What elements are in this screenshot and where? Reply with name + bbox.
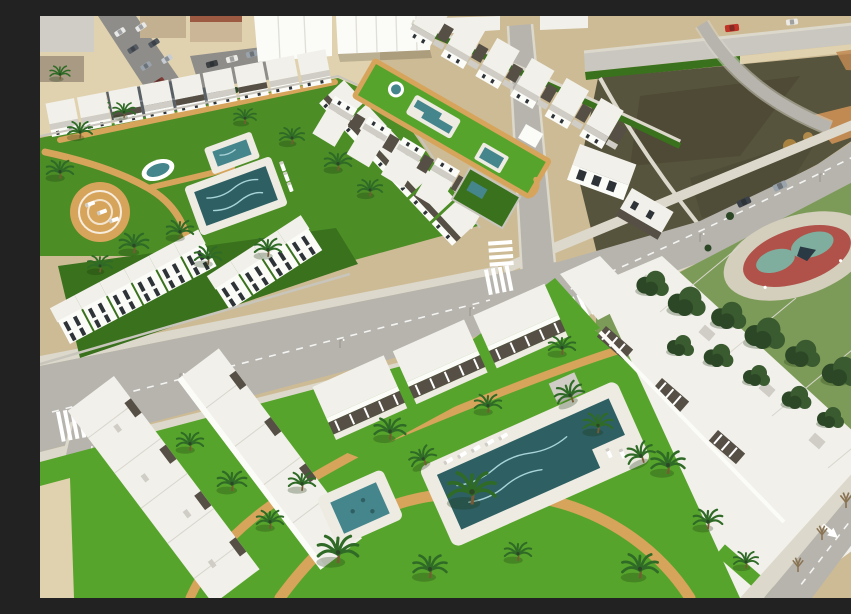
verge (40, 478, 74, 598)
round-terrace (70, 182, 130, 242)
town-building (40, 16, 94, 52)
red-tile-roof (190, 16, 242, 22)
aerial-render (40, 16, 851, 598)
render-canvas (40, 16, 851, 598)
bush (705, 245, 712, 252)
town-building (140, 16, 186, 38)
bush (726, 212, 734, 220)
